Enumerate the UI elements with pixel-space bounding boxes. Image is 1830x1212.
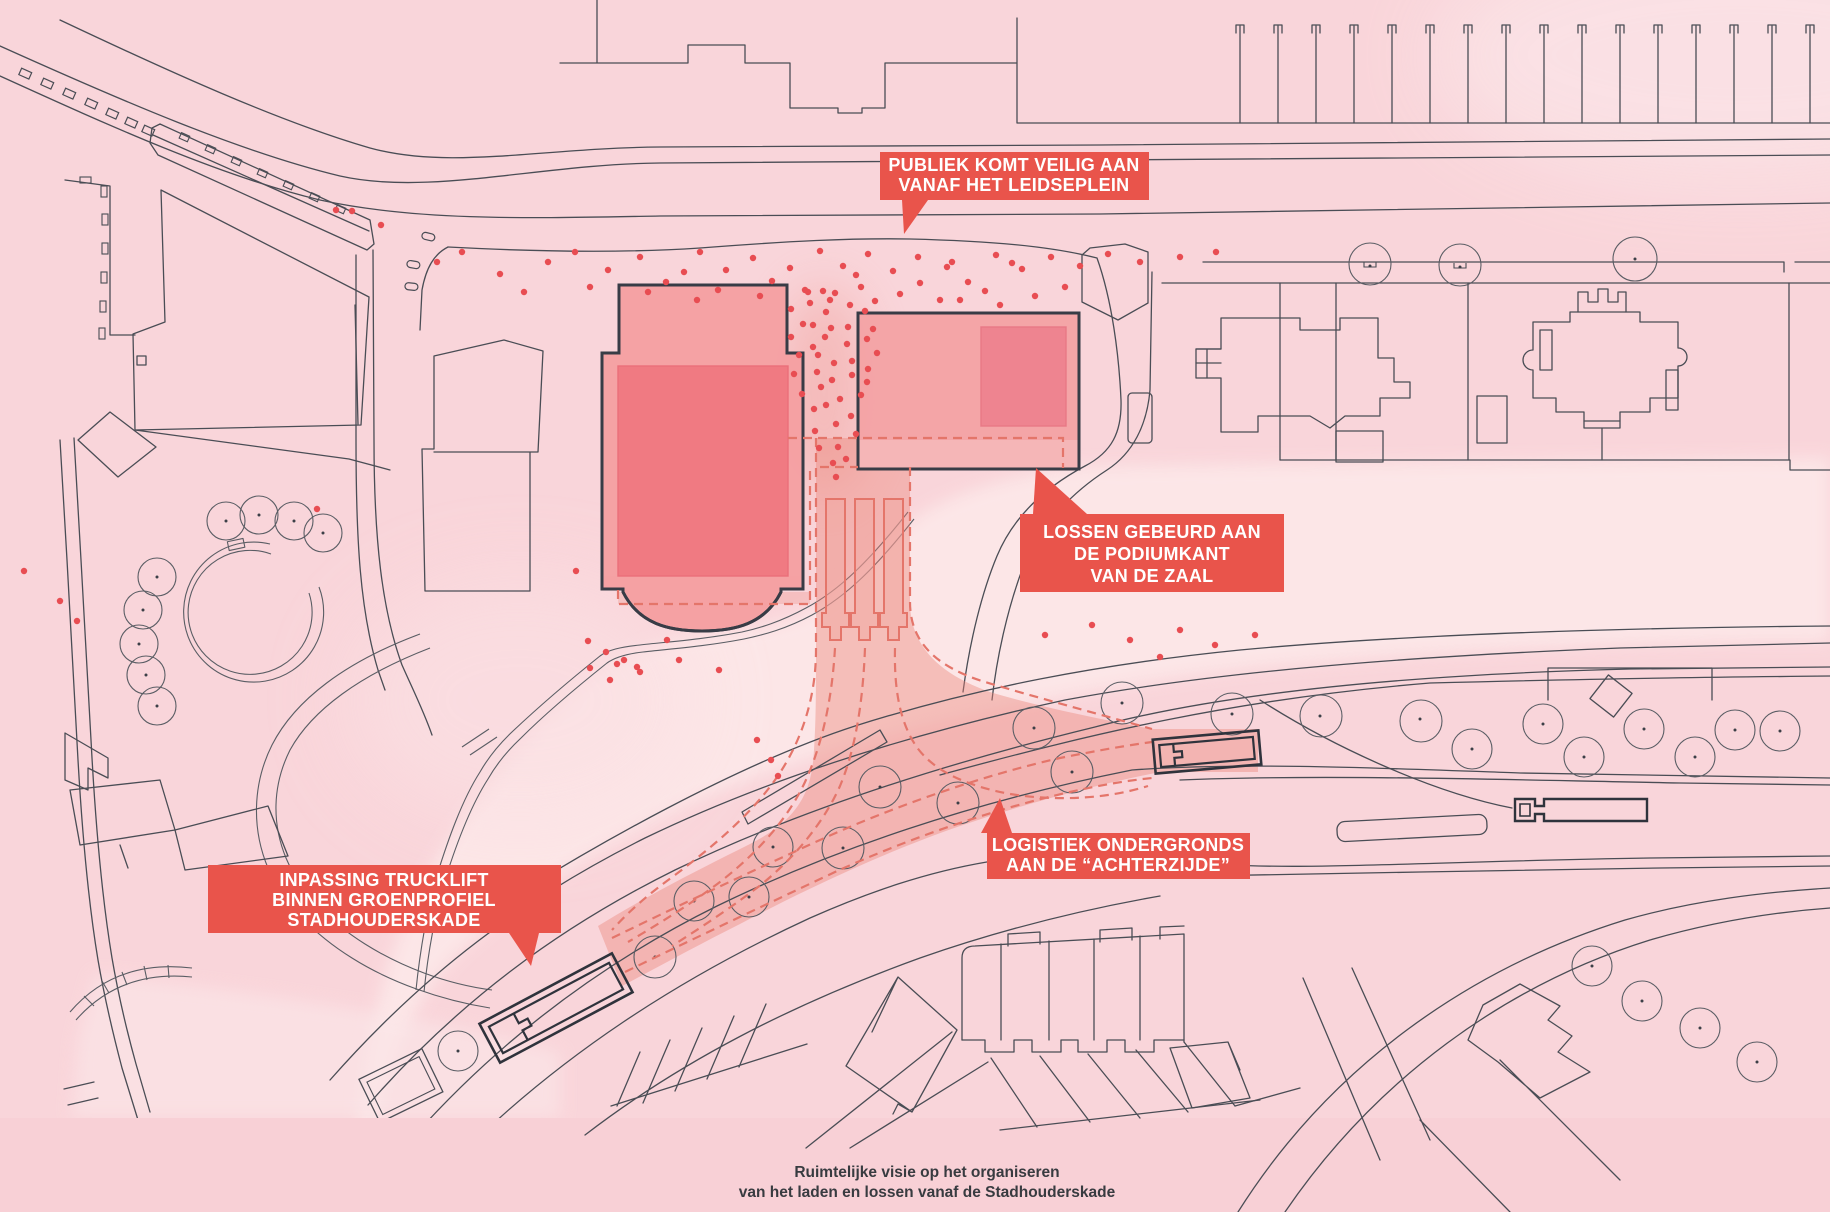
svg-text:Ruimtelijke visie op het organ: Ruimtelijke visie op het organiseren [794, 1164, 1059, 1181]
svg-text:VAN DE ZAAL: VAN DE ZAAL [1091, 566, 1214, 586]
svg-text:PUBLIEK KOMT VEILIG AAN: PUBLIEK KOMT VEILIG AAN [888, 155, 1139, 175]
svg-text:LOGISTIEK ONDERGRONDS: LOGISTIEK ONDERGRONDS [992, 835, 1244, 855]
svg-text:INPASSING TRUCKLIFT: INPASSING TRUCKLIFT [279, 870, 488, 890]
svg-text:STADHOUDERSKADE: STADHOUDERSKADE [287, 910, 480, 930]
svg-text:DE PODIUMKANT: DE PODIUMKANT [1074, 544, 1230, 564]
svg-text:VANAF HET LEIDSEPLEIN: VANAF HET LEIDSEPLEIN [899, 175, 1130, 195]
svg-text:AAN DE “ACHTERZIJDE”: AAN DE “ACHTERZIJDE” [1006, 855, 1230, 875]
svg-text:BINNEN GROENPROFIEL: BINNEN GROENPROFIEL [272, 890, 496, 910]
svg-text:van het laden en lossen vanaf: van het laden en lossen vanaf de Stadhou… [739, 1184, 1116, 1201]
svg-text:LOSSEN GEBEURD AAN: LOSSEN GEBEURD AAN [1043, 522, 1261, 542]
